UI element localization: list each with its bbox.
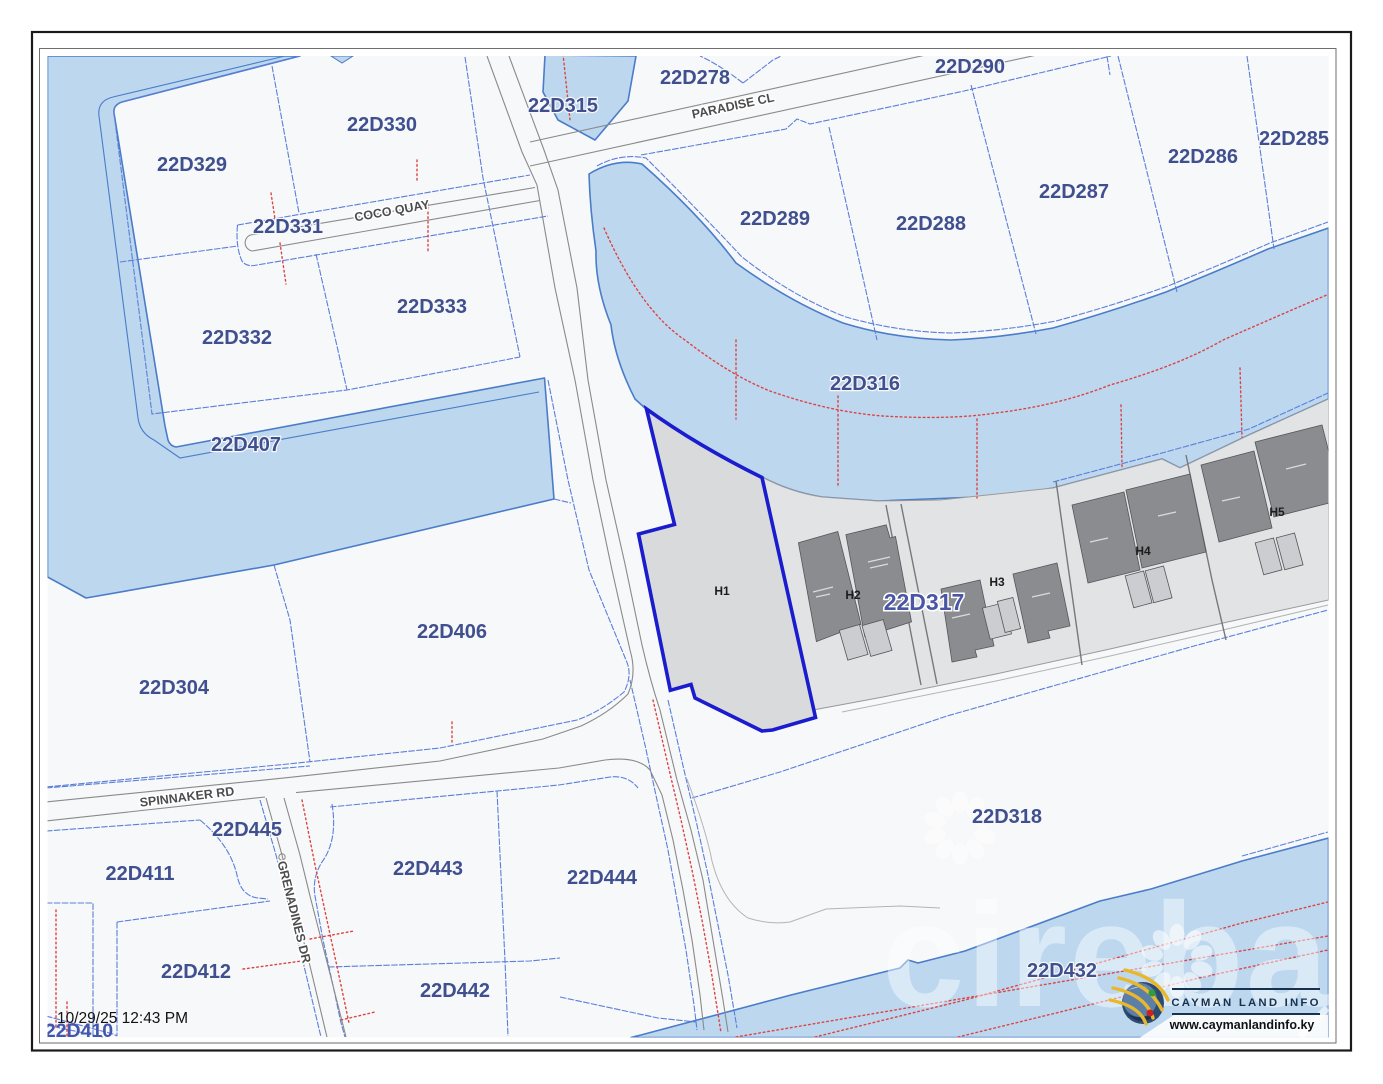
- svg-text:22D285: 22D285: [1259, 128, 1329, 150]
- svg-text:22D406: 22D406: [417, 621, 487, 643]
- svg-text:H5: H5: [1269, 505, 1285, 519]
- svg-text:22D443: 22D443: [393, 858, 463, 880]
- svg-text:22D331: 22D331: [253, 216, 323, 238]
- svg-text:22D304: 22D304: [139, 677, 210, 699]
- svg-text:22D444: 22D444: [567, 867, 638, 889]
- svg-text:H4: H4: [1135, 544, 1151, 558]
- svg-text:22D316: 22D316: [830, 373, 900, 395]
- svg-text:22D289: 22D289: [740, 208, 810, 230]
- svg-text:22D317: 22D317: [884, 589, 965, 615]
- svg-text:22D332: 22D332: [202, 327, 272, 349]
- svg-text:22D411: 22D411: [106, 863, 175, 885]
- svg-text:22D318: 22D318: [972, 806, 1042, 828]
- svg-text:22D278: 22D278: [660, 67, 730, 89]
- svg-text:22D333: 22D333: [397, 296, 467, 318]
- svg-text:22D290: 22D290: [935, 56, 1005, 78]
- svg-text:22D445: 22D445: [212, 819, 282, 841]
- svg-text:22D330: 22D330: [347, 114, 417, 136]
- svg-text:22D442: 22D442: [420, 980, 490, 1002]
- svg-text:22D412: 22D412: [161, 961, 231, 983]
- svg-text:22D288: 22D288: [896, 213, 966, 235]
- svg-text:22D407: 22D407: [211, 434, 281, 456]
- svg-text:H1: H1: [714, 584, 730, 598]
- svg-text:22D329: 22D329: [157, 154, 227, 176]
- svg-text:10/29/25 12:43 PM: 10/29/25 12:43 PM: [57, 1010, 188, 1027]
- svg-text:22D287: 22D287: [1039, 181, 1109, 203]
- svg-text:H3: H3: [989, 575, 1005, 589]
- svg-text:www.caymanlandinfo.ky: www.caymanlandinfo.ky: [1169, 1018, 1315, 1032]
- svg-text:22D432: 22D432: [1027, 960, 1097, 982]
- svg-text:22D315: 22D315: [528, 95, 598, 117]
- svg-text:H2: H2: [845, 588, 861, 602]
- svg-text:22D286: 22D286: [1168, 146, 1238, 168]
- svg-text:CAYMAN LAND INFO: CAYMAN LAND INFO: [1171, 997, 1320, 1009]
